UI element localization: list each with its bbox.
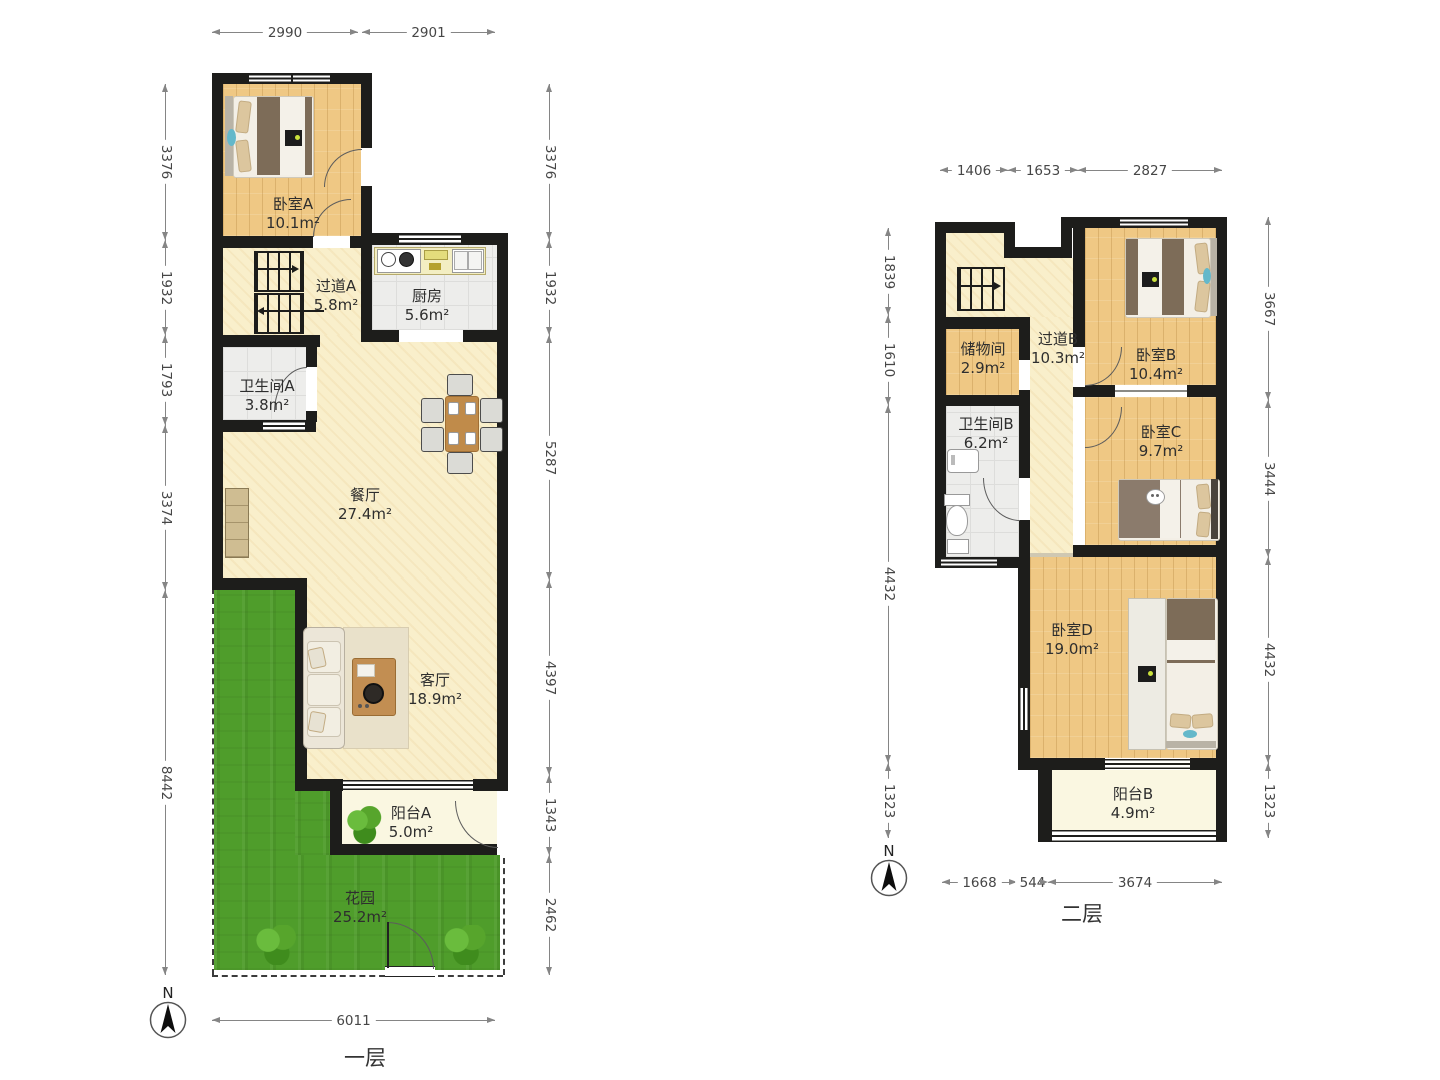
- dimension: 3444: [1268, 400, 1269, 557]
- room-area: 10.4m²: [1129, 365, 1183, 384]
- tv-icon: [1138, 666, 1156, 682]
- floor2-title: 二层: [1061, 898, 1103, 928]
- wall: [212, 335, 320, 347]
- dimension: 1653: [1008, 170, 1078, 171]
- sink-basin: [454, 251, 468, 270]
- window: [343, 780, 473, 790]
- wall: [330, 844, 497, 855]
- coffee-table-tray: [357, 664, 375, 677]
- sofa-cushion: [307, 674, 341, 706]
- garden-fence-right: [503, 858, 505, 975]
- room-hallwayB-floor: [1004, 258, 1073, 317]
- dimension: 3374: [165, 425, 166, 590]
- dimension: 4432: [888, 405, 889, 763]
- room-name: 过道B: [1031, 330, 1085, 349]
- room-area: 3.8m²: [239, 396, 294, 415]
- wall: [935, 317, 1030, 329]
- room-label-bathroomB: 卫生间B 6.2m²: [958, 415, 1013, 453]
- window: [249, 74, 291, 83]
- room-label-storage: 储物间 2.9m²: [960, 340, 1005, 378]
- room-name: 卧室D: [1045, 621, 1099, 640]
- bed-accent: [1183, 730, 1197, 738]
- window: [399, 234, 461, 244]
- stairs-arrow: [960, 285, 996, 287]
- burner-icon: [381, 252, 396, 267]
- dimension: 3667: [1268, 217, 1269, 400]
- clock-icon: [1146, 489, 1165, 505]
- room-label-hallwayA: 过道A 5.8m²: [314, 277, 358, 315]
- room-area: 5.8m²: [314, 296, 358, 315]
- bed-runner: [1160, 480, 1180, 538]
- room-area: 10.3m²: [1031, 349, 1085, 368]
- dimension: 5287: [549, 335, 550, 580]
- chair: [480, 398, 503, 423]
- stairs-arrow: [258, 268, 294, 270]
- door-opening: [1019, 478, 1030, 520]
- chair: [447, 374, 473, 396]
- bed-accent: [1203, 268, 1211, 284]
- dimension: 544: [1017, 882, 1048, 883]
- dimension: 2901: [362, 32, 495, 33]
- sink-basin: [468, 251, 482, 270]
- door-opening: [1019, 360, 1030, 390]
- dimension: 3376: [549, 84, 550, 240]
- dimension: 1839: [888, 228, 889, 315]
- window: [1019, 688, 1029, 730]
- kitchen-item: [424, 250, 448, 260]
- bed-accent: [227, 129, 236, 146]
- dimension: 1610: [888, 315, 889, 405]
- kitchen-item: [429, 263, 441, 270]
- room-label-bedroomD: 卧室D 19.0m²: [1045, 621, 1099, 659]
- room-area: 5.0m²: [389, 823, 433, 842]
- plant-icon: [346, 806, 382, 844]
- wall: [497, 233, 508, 790]
- bed-headboard: [1211, 479, 1218, 539]
- bed-pillow: [1191, 713, 1213, 729]
- opening-line: [1115, 390, 1187, 392]
- door-opening: [313, 236, 350, 248]
- room-label-hallwayB: 过道B 10.3m²: [1031, 330, 1085, 368]
- wall: [1190, 758, 1227, 770]
- wall: [212, 578, 307, 590]
- dimension: 1668: [942, 882, 1017, 883]
- tv-icon: [285, 130, 302, 146]
- dimension: 1323: [888, 763, 889, 838]
- plate: [465, 402, 476, 415]
- dimension: 4397: [549, 580, 550, 775]
- wall: [1019, 317, 1030, 557]
- kettle-dot: [358, 704, 362, 708]
- floorplan-canvas: 卧室A 10.1m² 过道A 5.8m² 厨房 5.6m² 卫生间A 3.8m²…: [0, 0, 1440, 1080]
- dimension: 1793: [165, 335, 166, 425]
- burner-icon: [399, 252, 414, 267]
- compass-needle-icon: [147, 999, 189, 1041]
- stairs-arrowhead: [292, 265, 299, 273]
- wall: [1018, 557, 1030, 770]
- door-opening: [497, 799, 508, 846]
- garden-grass-balcony-side: [295, 790, 330, 855]
- plate: [448, 402, 459, 415]
- chair: [480, 427, 503, 452]
- room-label-bedroomA: 卧室A 10.1m²: [266, 195, 320, 233]
- room-area: 2.9m²: [960, 359, 1005, 378]
- wall: [935, 222, 1015, 233]
- floor1-title: 一层: [344, 1042, 386, 1072]
- sofa-pillow: [307, 711, 326, 733]
- kettle-icon: [363, 683, 384, 704]
- compass-needle-icon: [868, 857, 910, 899]
- wall: [935, 395, 1030, 406]
- wall: [1018, 758, 1105, 770]
- room-area: 18.9m²: [408, 690, 462, 709]
- window: [263, 421, 305, 431]
- room-label-living: 客厅 18.9m²: [408, 671, 462, 709]
- room-area: 5.6m²: [405, 306, 449, 325]
- dimension: 6011: [212, 1020, 495, 1021]
- wall: [361, 248, 372, 335]
- wall: [1038, 770, 1052, 842]
- room-area: 9.7m²: [1139, 442, 1183, 461]
- bed-headboard: [1166, 741, 1216, 748]
- bush-icon: [254, 925, 298, 965]
- wall: [473, 779, 508, 791]
- chair: [421, 427, 444, 452]
- room-name: 储物间: [960, 340, 1005, 359]
- wall: [212, 73, 223, 590]
- window: [1120, 218, 1188, 227]
- dimension: 1932: [549, 240, 550, 335]
- north-compass-icon: N: [146, 984, 190, 1045]
- room-area: 19.0m²: [1045, 640, 1099, 659]
- window: [941, 558, 997, 567]
- room-label-bathroomA: 卫生间A 3.8m²: [239, 377, 294, 415]
- room-name: 卧室B: [1129, 346, 1183, 365]
- room-label-bedroomB: 卧室B 10.4m²: [1129, 346, 1183, 384]
- garden-fence-bottom: [212, 975, 503, 977]
- clock-dot: [1151, 494, 1154, 497]
- balcony-railing: [1052, 830, 1216, 842]
- bath-item: [947, 539, 969, 554]
- dimension: 2990: [212, 32, 358, 33]
- dimension: 8442: [165, 590, 166, 975]
- bed-pillow: [1169, 713, 1191, 729]
- room-label-garden: 花园 25.2m²: [333, 889, 387, 927]
- wall: [212, 73, 372, 84]
- dimension: 2462: [549, 855, 550, 975]
- sideboard: [225, 488, 249, 558]
- room-label-balconyA: 阳台A 5.0m²: [389, 804, 433, 842]
- room-label-dining: 餐厅 27.4m²: [338, 486, 392, 524]
- dimension: 1406: [940, 170, 1008, 171]
- plate: [448, 432, 459, 445]
- wall: [1216, 770, 1227, 842]
- door-opening: [306, 367, 317, 411]
- bed-pillow: [1196, 483, 1212, 509]
- dimension: 2827: [1078, 170, 1222, 171]
- bed-pillow: [1196, 511, 1212, 537]
- room-area: 25.2m²: [333, 908, 387, 927]
- tv-icon: [1142, 272, 1159, 287]
- dimension: 1343: [549, 775, 550, 855]
- plate: [465, 432, 476, 445]
- room-name: 卫生间B: [958, 415, 1013, 434]
- dimension: 3376: [165, 84, 166, 240]
- room-name: 餐厅: [338, 486, 392, 505]
- north-compass-icon: N: [867, 842, 911, 903]
- door-opening: [361, 148, 372, 186]
- window: [293, 74, 330, 83]
- window: [1105, 759, 1190, 769]
- room-name: 卫生间A: [239, 377, 294, 396]
- room-name: 过道A: [314, 277, 358, 296]
- wall: [1073, 545, 1227, 557]
- bed-runner: [1167, 640, 1215, 660]
- room-label-bedroomC: 卧室C 9.7m²: [1139, 423, 1183, 461]
- room-name: 卧室A: [266, 195, 320, 214]
- room-label-balconyB: 阳台B 4.9m²: [1111, 785, 1155, 823]
- kettle-dot: [365, 704, 369, 708]
- bush-icon: [442, 925, 488, 965]
- room-name: 阳台B: [1111, 785, 1155, 804]
- clock-dot: [1156, 494, 1159, 497]
- garden-fence-left: [212, 588, 214, 975]
- room-label-kitchen: 厨房 5.6m²: [405, 287, 449, 325]
- dimension: 1323: [1268, 763, 1269, 838]
- toilet-icon: [946, 505, 968, 536]
- stairs-arrowhead: [257, 307, 264, 315]
- dimension: 3674: [1048, 882, 1222, 883]
- dimension: 1932: [165, 240, 166, 335]
- room-area: 4.9m²: [1111, 804, 1155, 823]
- faucet-dot: [951, 455, 955, 465]
- room-area: 10.1m²: [266, 214, 320, 233]
- room-name: 客厅: [408, 671, 462, 690]
- room-name: 花园: [333, 889, 387, 908]
- room-area: 6.2m²: [958, 434, 1013, 453]
- door-opening: [399, 330, 463, 342]
- gate-door-leaf: [387, 922, 389, 968]
- threshold: [1030, 553, 1073, 557]
- chair: [421, 398, 444, 423]
- room-area: 27.4m²: [338, 505, 392, 524]
- stairs-arrowhead: [994, 282, 1001, 290]
- chair: [447, 452, 473, 474]
- dimension: 4432: [1268, 557, 1269, 763]
- room-name: 卧室C: [1139, 423, 1183, 442]
- room-name: 阳台A: [389, 804, 433, 823]
- room-name: 厨房: [405, 287, 449, 306]
